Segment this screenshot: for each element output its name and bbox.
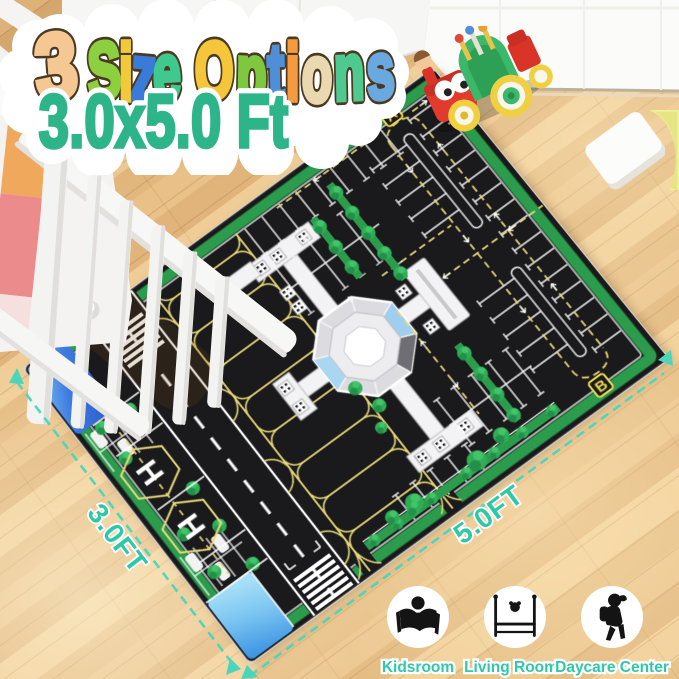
svg-text:3.0x5.0 Ft: 3.0x5.0 Ft	[39, 80, 289, 163]
svg-text:Daycare Center: Daycare Center	[555, 659, 669, 676]
svg-text:o: o	[301, 29, 334, 120]
svg-text:s: s	[364, 25, 396, 117]
svg-text:Kidsroom: Kidsroom	[382, 659, 454, 676]
svg-text:Living Room: Living Room	[464, 659, 558, 676]
svg-text:3.0FT: 3.0FT	[82, 498, 154, 579]
svg-text:n: n	[333, 27, 365, 118]
svg-text:5.0FT: 5.0FT	[448, 479, 529, 550]
